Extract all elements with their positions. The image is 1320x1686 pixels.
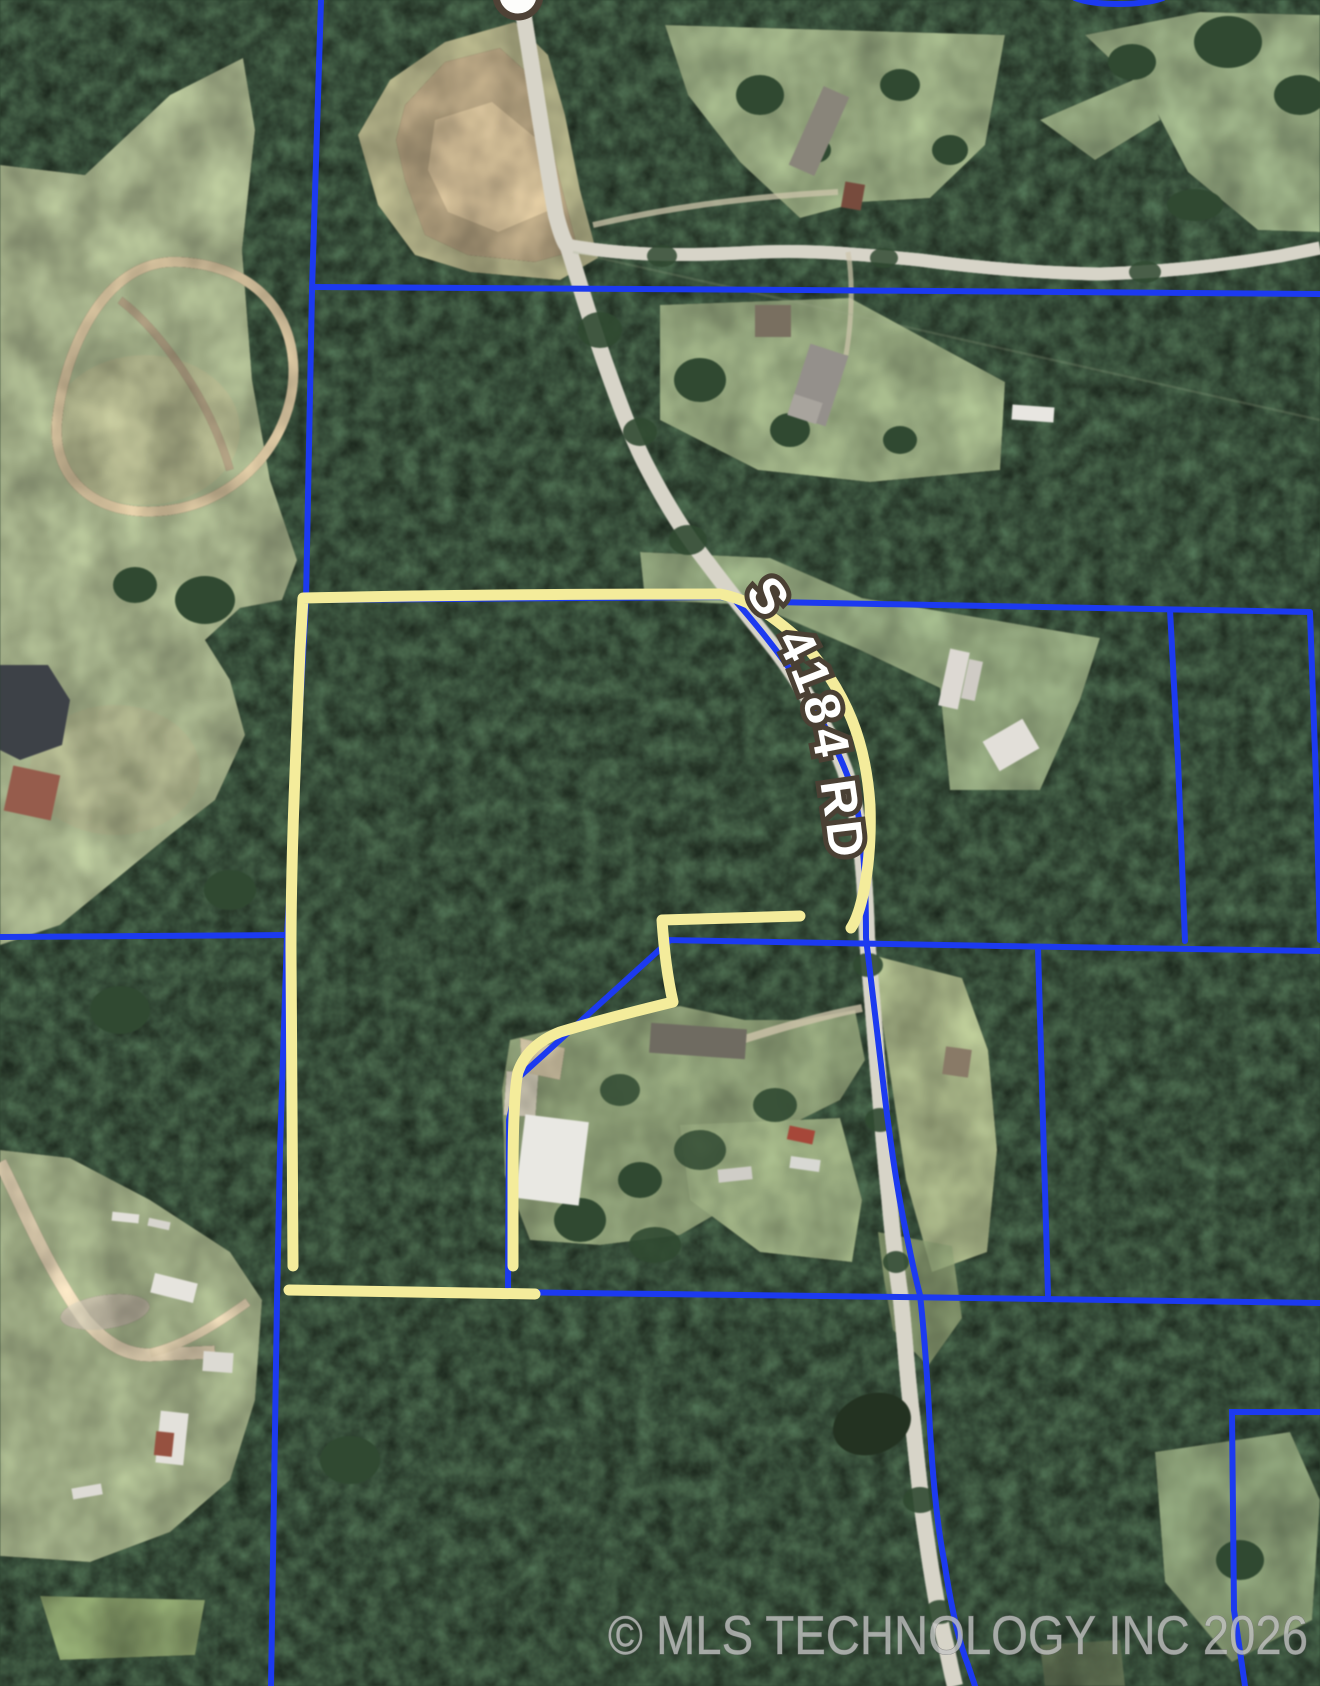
svg-text:© MLS TECHNOLOGY INC 2026: © MLS TECHNOLOGY INC 2026 [608, 1604, 1308, 1666]
